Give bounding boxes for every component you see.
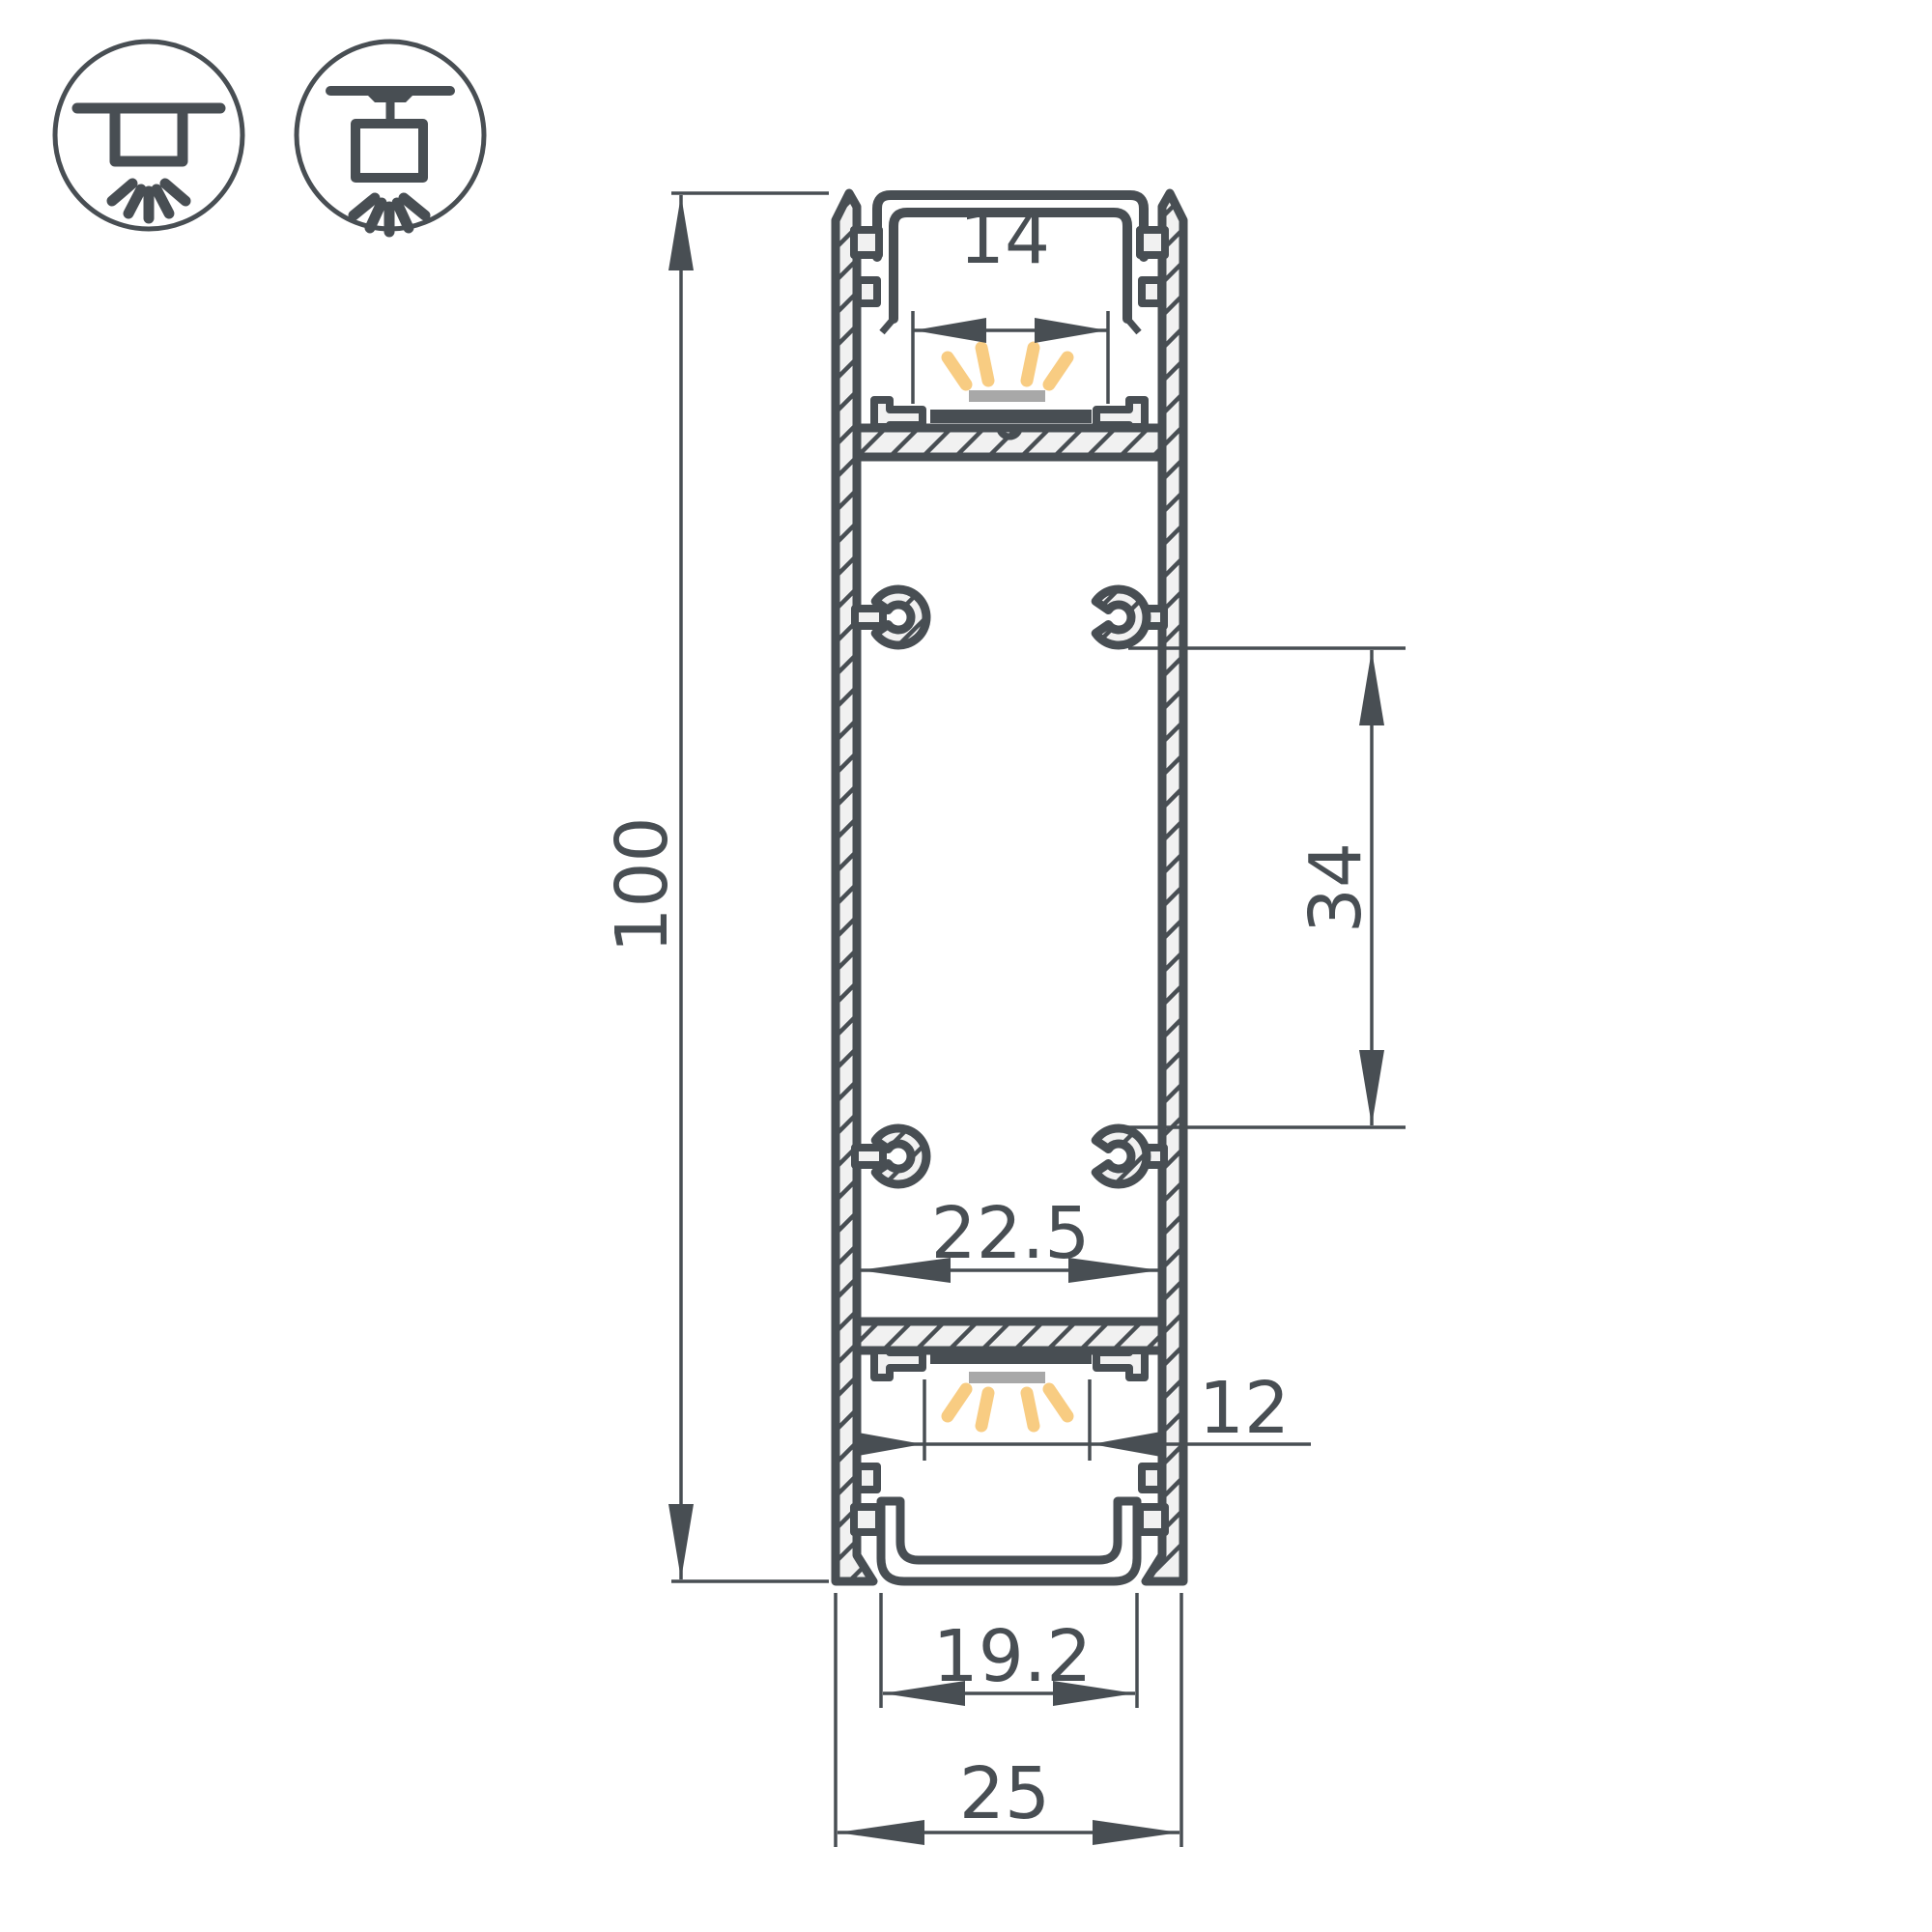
- arrowhead-left: [838, 1820, 924, 1845]
- light-rays-up: [948, 348, 1067, 384]
- spring-hook: [1127, 319, 1139, 332]
- dim-label-14: 14: [959, 197, 1050, 280]
- led-shelf-lip: [874, 1350, 923, 1378]
- interlock-tab: [1142, 1466, 1161, 1490]
- led-strip-pcb: [930, 410, 1092, 423]
- screw-bosses: [855, 589, 1164, 1184]
- dim-label-22-5: 22.5: [931, 1192, 1091, 1275]
- arrowhead-up: [1359, 650, 1384, 725]
- arrowhead-up: [668, 195, 694, 270]
- light-rays: [112, 184, 185, 218]
- interlock-tab: [854, 230, 879, 255]
- led-strip-pcb: [930, 1350, 1092, 1364]
- icon-circle: [297, 42, 484, 229]
- dim-label-25: 25: [959, 1752, 1050, 1835]
- arrowhead-down: [668, 1504, 694, 1579]
- fixture-box: [115, 108, 183, 161]
- led-shelf-lip: [874, 400, 923, 427]
- interlock-tab: [1140, 1507, 1165, 1532]
- arrowhead-right: [1093, 1820, 1179, 1845]
- ceiling-surface-mount-icon: [55, 42, 242, 229]
- dim-label-100: 100: [601, 816, 684, 952]
- lower-divider-wall: [857, 1321, 1162, 1350]
- bottom-diffuser-tray: [881, 1501, 1137, 1581]
- right-outer-wall: [1146, 193, 1183, 1581]
- dim-label-19-2: 19.2: [933, 1615, 1093, 1698]
- dim-label-34: 34: [1294, 842, 1378, 933]
- fixture-box: [355, 124, 423, 178]
- dimension-inner-width: 22.5: [859, 1192, 1160, 1283]
- arrowhead-left: [914, 318, 986, 343]
- arrowhead-down: [1359, 1050, 1384, 1125]
- led-emitter: [969, 390, 1045, 402]
- spring-hook: [882, 319, 894, 332]
- dimension-led-window: 12: [853, 1367, 1311, 1461]
- light-rays-down: [948, 1389, 1067, 1426]
- boss-stem: [855, 609, 883, 626]
- upper-divider-wall: [857, 428, 1162, 457]
- ceiling-pendant-mount-icon: [297, 42, 484, 232]
- interlock-tab: [858, 1466, 877, 1490]
- arrowhead-right: [1035, 318, 1107, 343]
- profile-cross-section: [836, 193, 1183, 1581]
- led-shelf-lip: [1096, 400, 1145, 427]
- led-profile-technical-drawing: 100 14 34 22.5 12: [0, 0, 1932, 1932]
- interlock-tab: [1142, 280, 1161, 303]
- dimension-top-opening: 14: [913, 197, 1108, 404]
- led-emitter: [969, 1372, 1045, 1383]
- arrowhead-left-in: [1092, 1432, 1161, 1457]
- left-outer-wall: [836, 193, 873, 1581]
- interlock-tab: [1140, 230, 1165, 255]
- interlock-tab: [854, 1507, 879, 1532]
- boss-stem: [855, 1148, 883, 1165]
- dimension-overall-height: 100: [601, 193, 829, 1581]
- arrowhead-right-in: [853, 1432, 923, 1457]
- dimension-bottom-channel: 19.2: [881, 1593, 1137, 1708]
- led-shelf-lip: [1096, 1350, 1145, 1378]
- dim-label-12: 12: [1199, 1367, 1290, 1450]
- interlock-tab: [858, 280, 877, 303]
- screw-boss: [1095, 589, 1147, 645]
- screw-boss: [1095, 1128, 1147, 1184]
